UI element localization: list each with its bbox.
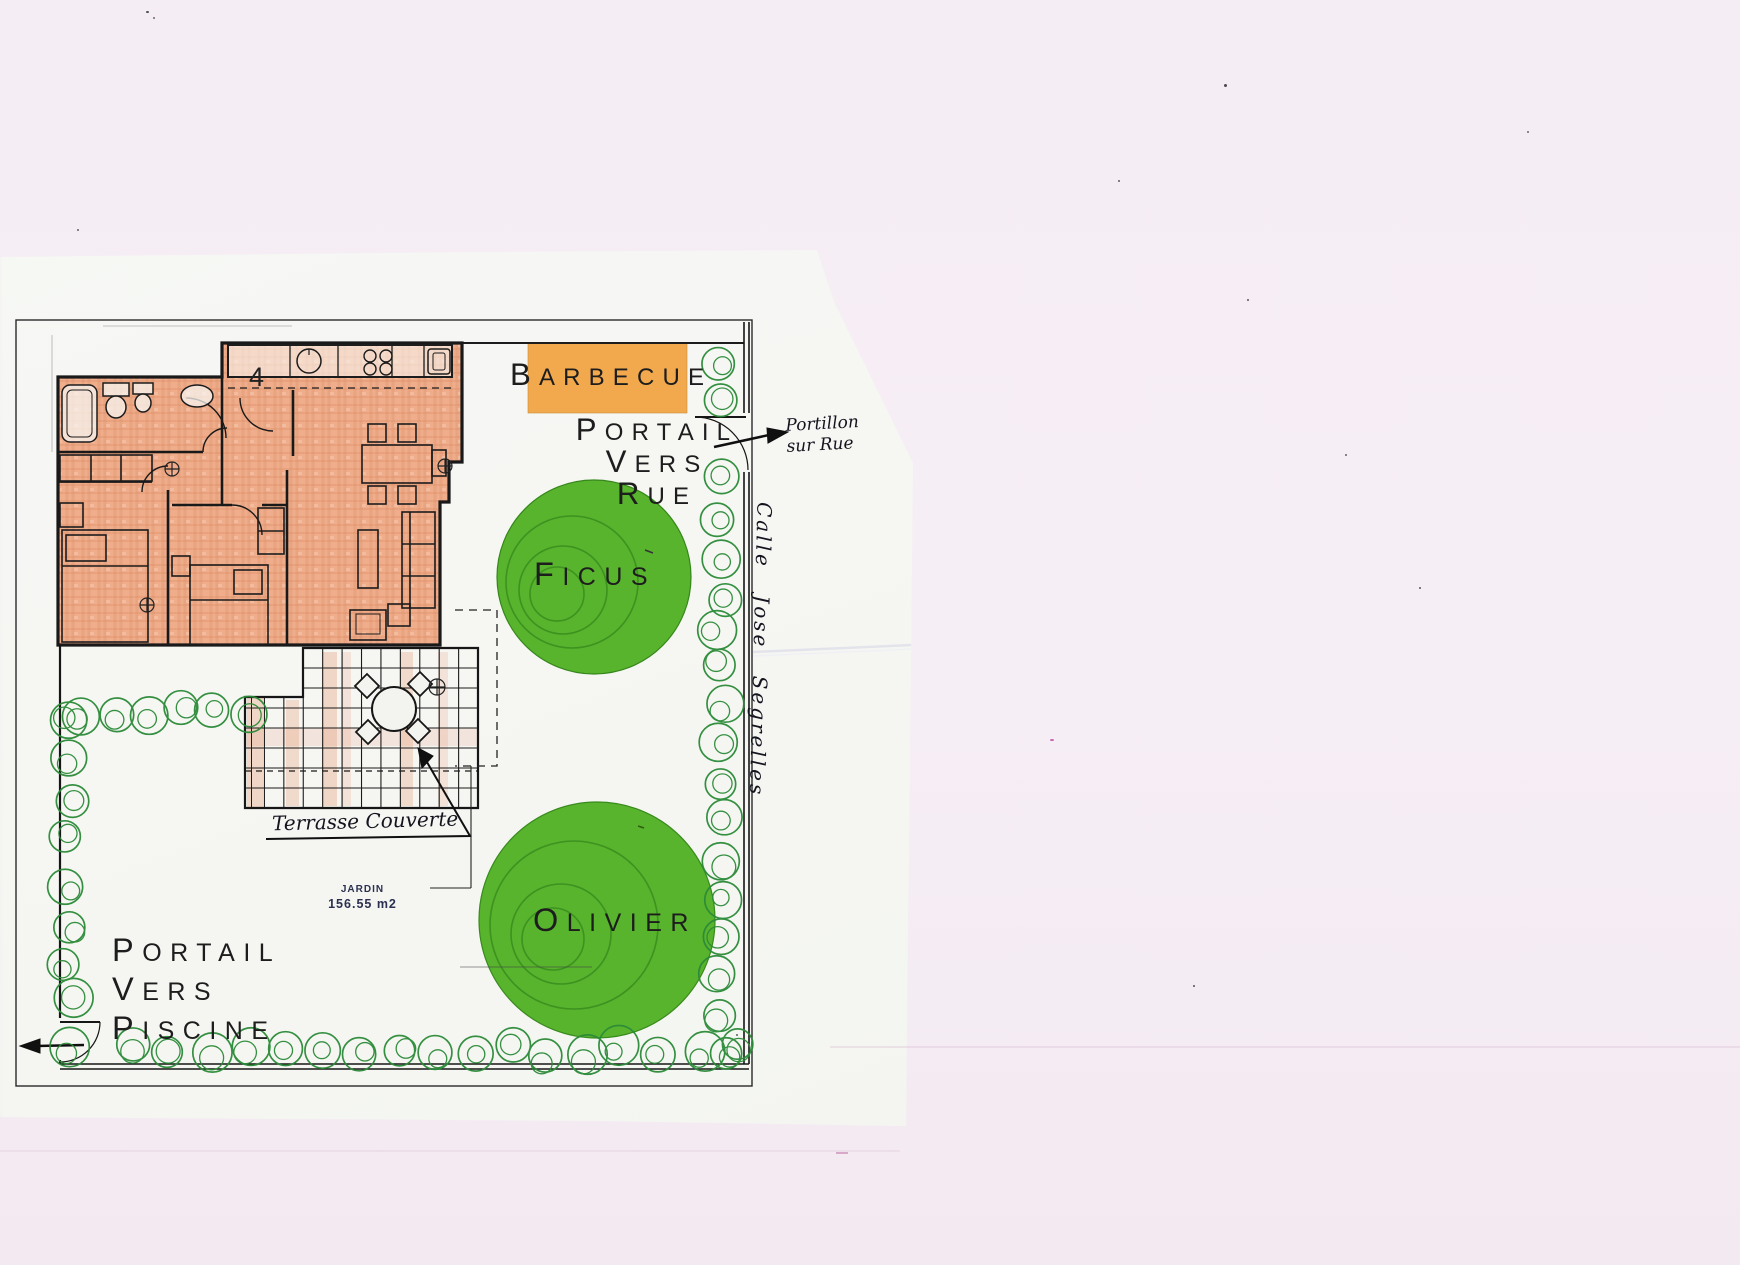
dust-speck	[1224, 84, 1227, 87]
garden-name: JARDIN	[315, 884, 410, 895]
ficus-label: FICUS	[534, 556, 654, 593]
terrace-note: Terrasse Couverte	[272, 807, 459, 836]
dust-speck	[1247, 299, 1249, 301]
scan-streak	[830, 1046, 1740, 1048]
dust-speck	[153, 17, 155, 19]
dust-speck	[1419, 587, 1421, 589]
site-plan-drawing	[0, 0, 1740, 1265]
olivier-label: OLIVIER	[533, 902, 693, 939]
dust-speck	[736, 1034, 738, 1036]
dust-speck	[146, 11, 149, 13]
portillon-note: Portillon sur Rue	[785, 412, 861, 458]
portillon-note-line2: sur Rue	[786, 433, 860, 458]
pool-gate-label-line2: VERS	[112, 971, 281, 1010]
street-gate-label-line1: PORTAIL	[572, 415, 742, 447]
scanned-page: BARBECUE PORTAIL VERS RUE FICUS OLIVIER …	[0, 0, 1740, 1265]
street-gate-label-line2: VERS	[572, 447, 742, 479]
pool-gate-arrow	[20, 1039, 84, 1053]
dust-speck	[1193, 985, 1195, 987]
dust-speck	[1345, 454, 1347, 456]
dust-speck	[1527, 131, 1529, 133]
terrace	[245, 648, 478, 808]
pool-gate-label-line1: PORTAIL	[112, 932, 281, 971]
unit-number: 4	[249, 362, 264, 393]
garden-area-caption: JARDIN 156.55 m2	[315, 884, 410, 911]
street-gate-label-line3: RUE	[572, 479, 742, 511]
barbecue-label: BARBECUE	[510, 357, 706, 393]
page-crease	[753, 645, 912, 656]
dust-speck	[1050, 739, 1054, 741]
pool-gate-label-line3: PISCINE	[112, 1010, 281, 1049]
scan-background: BARBECUE PORTAIL VERS RUE FICUS OLIVIER …	[0, 0, 1740, 1265]
pool-gate-label: PORTAIL VERS PISCINE	[112, 932, 281, 1049]
scan-streak	[0, 1150, 900, 1152]
dust-speck	[1118, 180, 1120, 182]
dust-speck	[77, 229, 79, 231]
garden-area-value: 156.55 m2	[315, 897, 410, 911]
scan-streak	[836, 1152, 848, 1154]
street-gate-label: PORTAIL VERS RUE	[572, 415, 742, 511]
